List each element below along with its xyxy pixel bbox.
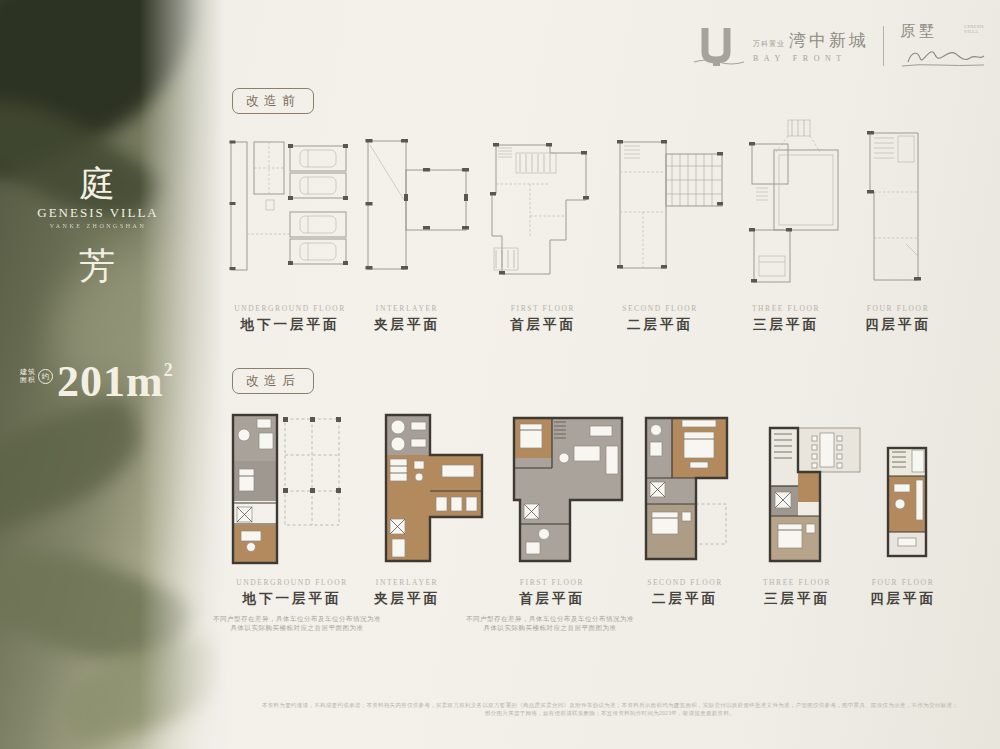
area-label: 建筑 面积 bbox=[20, 368, 36, 384]
tag-before-renovation: 改造前 bbox=[232, 88, 314, 114]
caption-after-interlayer: INTERLAYER 夹层平面 bbox=[374, 578, 440, 608]
area-figure: 建筑 面积 约 201m2 bbox=[20, 348, 174, 404]
bayfront-logo-icon bbox=[693, 22, 745, 70]
brand-lockup: 万科置业 湾中新城 BAY FRONT 原墅 GENESIS VILLA bbox=[693, 20, 988, 72]
caption-after-fourth: FOUR FLOOR 四层平面 bbox=[870, 578, 936, 608]
area-superscript: 2 bbox=[164, 360, 174, 380]
sub-brand: 原墅 GENESIS VILLA bbox=[898, 20, 988, 72]
caption-after-first: FIRST FLOOR 首层平面 bbox=[519, 578, 585, 608]
project-title-char-1: 庭 bbox=[0, 160, 196, 209]
company-name: 万科置业 bbox=[753, 39, 785, 49]
sub-brand-cn: 原墅 bbox=[900, 22, 938, 41]
project-subtitle-en: GENESIS VILLA bbox=[0, 205, 196, 221]
project-title-char-2: 芳 bbox=[0, 242, 196, 291]
plan-after-second-floor bbox=[644, 416, 730, 565]
plan-after-interlayer bbox=[384, 413, 484, 565]
footer-disclaimer: 本资料为要约邀请，不构成要约或承诺；本资料相关内容仅供参考，买卖双方权利义务以双… bbox=[240, 701, 980, 717]
area-value: 201m2 bbox=[57, 348, 174, 404]
brand-texts: 万科置业 湾中新城 BAY FRONT bbox=[753, 29, 869, 63]
plan-before-underground bbox=[228, 138, 355, 275]
plan-before-first-floor bbox=[486, 138, 592, 280]
caption-before-second: SECOND FLOOR 二层平面 bbox=[622, 304, 698, 334]
plan-after-underground bbox=[231, 413, 343, 565]
plan-before-second-floor bbox=[610, 136, 730, 276]
caption-before-first: FIRST FLOOR 首层平面 bbox=[510, 304, 576, 334]
plan-before-fourth-floor bbox=[862, 128, 926, 288]
project-subtitle-small: VANKE ZHONGSHAN bbox=[0, 223, 196, 229]
note-first-floor: 不同户型存在差异，具体车位分布及车位分布情况为准 具体以实际购买楼栋对应之首层平… bbox=[466, 614, 634, 632]
caption-after-underground: UNDERGROUND FLOOR 地下一层平面 bbox=[236, 578, 348, 608]
caption-after-third: THREE FLOOR 三层平面 bbox=[763, 578, 831, 608]
caption-before-third: THREE FLOOR 三层平面 bbox=[752, 304, 820, 334]
caption-before-fourth: FOUR FLOOR 四层平面 bbox=[865, 304, 931, 334]
tag-after-renovation: 改造后 bbox=[232, 368, 314, 394]
sub-brand-tag: GENESIS VILLA bbox=[964, 24, 988, 34]
project-name-en: BAY FRONT bbox=[753, 54, 869, 63]
approx-badge: 约 bbox=[38, 369, 53, 384]
caption-before-underground: UNDERGROUND FLOOR 地下一层平面 bbox=[234, 304, 346, 334]
plan-after-first-floor bbox=[512, 416, 624, 565]
note-underground: 不同户型存在差异，具体车位分布及车位分布情况为准 具体以实际购买楼栋对应之首层平… bbox=[213, 614, 381, 632]
signature-script-icon bbox=[898, 42, 988, 72]
caption-before-interlayer: INTERLAYER 夹层平面 bbox=[374, 304, 440, 334]
caption-after-second: SECOND FLOOR 二层平面 bbox=[647, 578, 723, 608]
plan-after-fourth-floor bbox=[886, 446, 930, 560]
plan-after-third-floor bbox=[768, 426, 864, 565]
plan-before-interlayer bbox=[363, 136, 471, 276]
project-name-cn: 湾中新城 bbox=[789, 29, 869, 52]
plan-before-third-floor bbox=[746, 118, 844, 288]
brand-divider bbox=[883, 26, 884, 66]
